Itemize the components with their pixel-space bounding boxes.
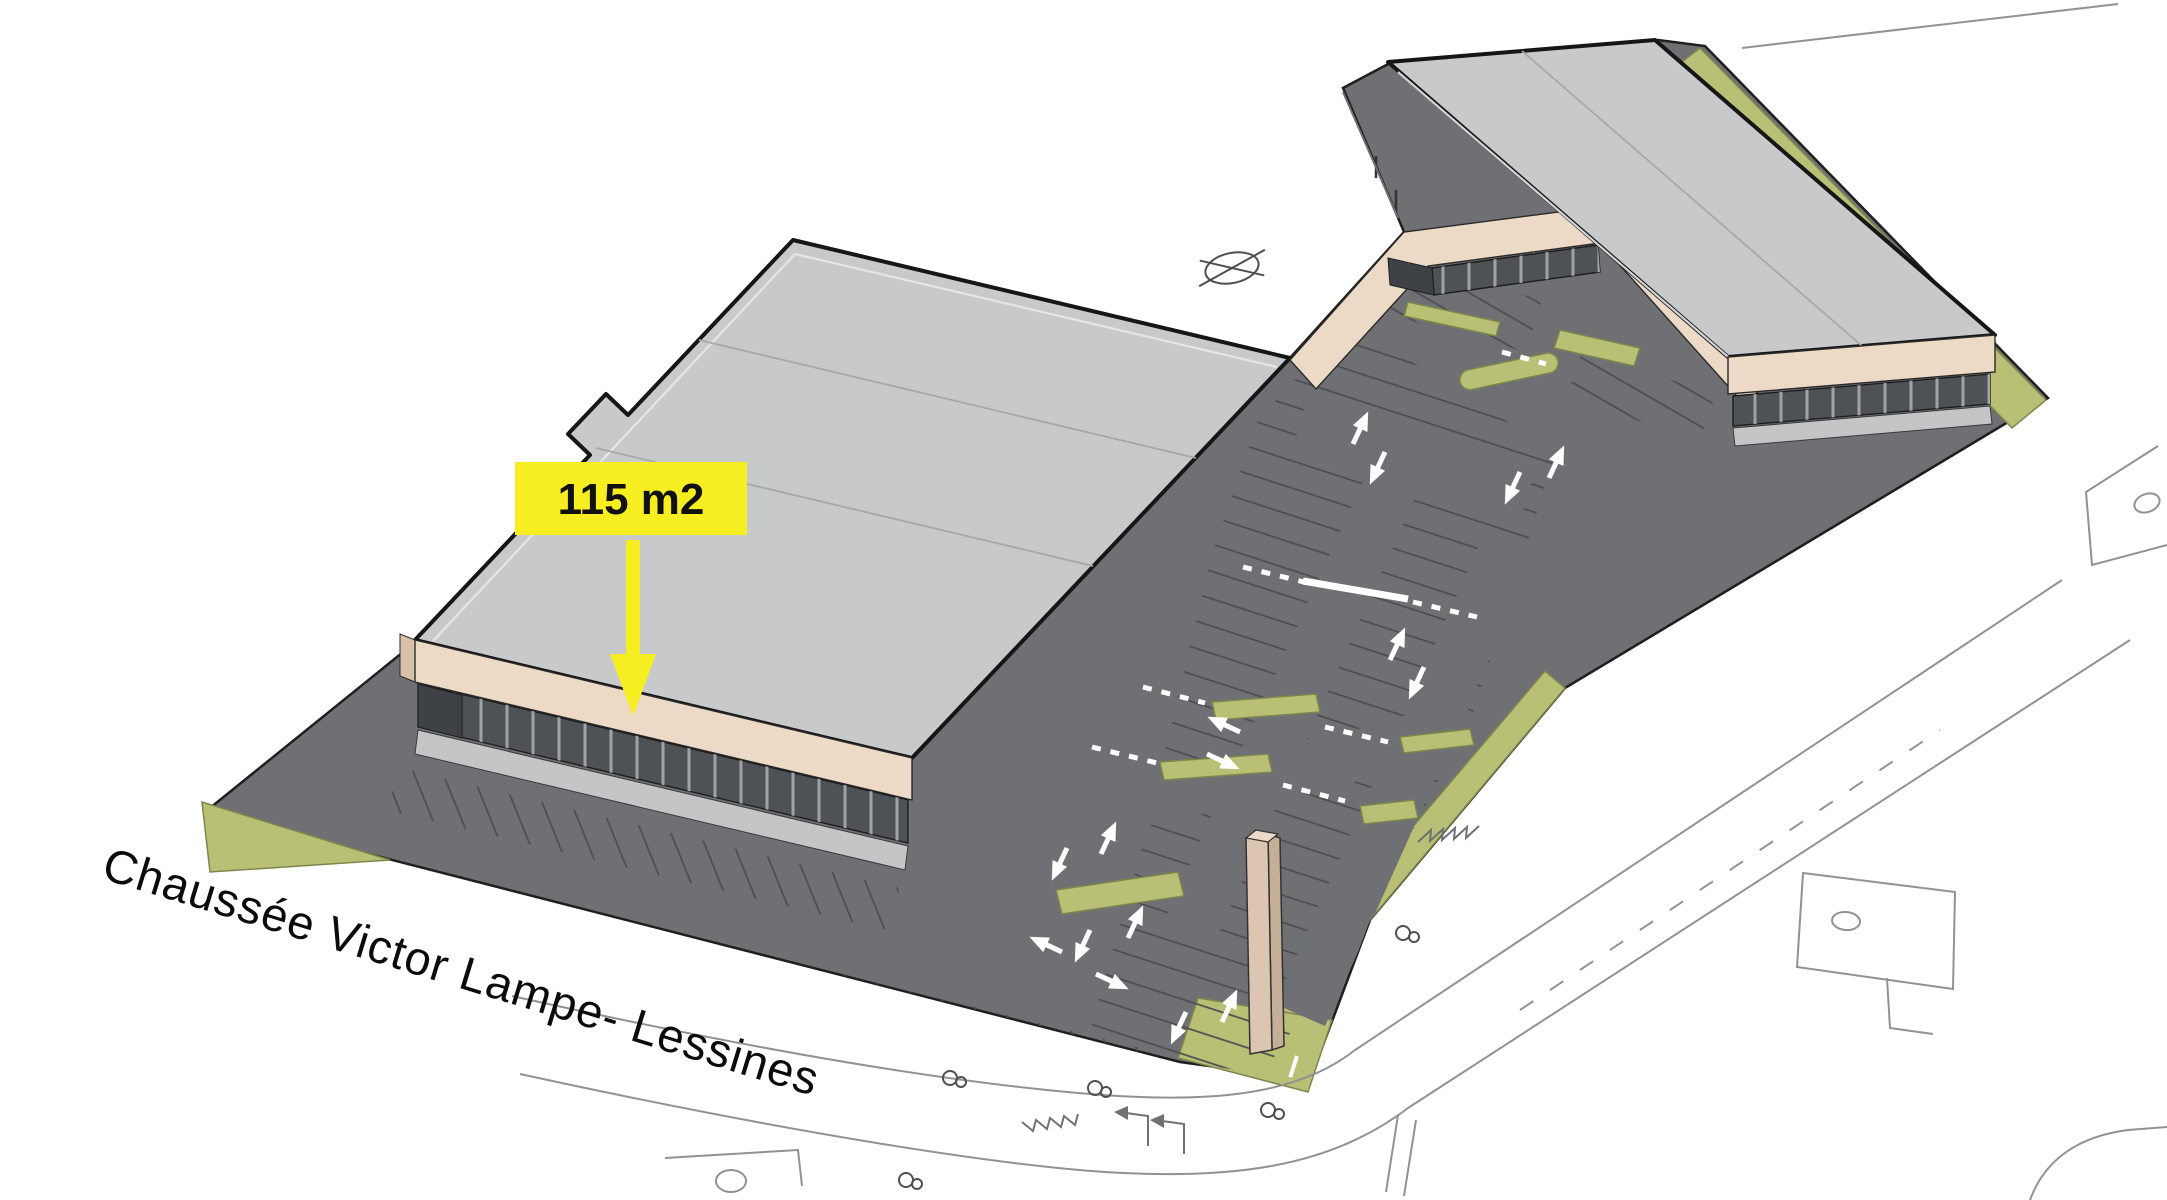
- survey-marker-icon: [1194, 246, 1271, 290]
- tree-icon: [1396, 926, 1419, 942]
- tree-icon: [1261, 1103, 1284, 1119]
- left-building-fascia-return: [400, 634, 415, 682]
- site-plan: 115 m2 Chaussée Victor Lampe- Lessines: [0, 0, 2167, 1200]
- neighbor-footprint: [1797, 873, 1955, 1034]
- pylon-sign: [1246, 830, 1284, 1054]
- area-label: 115 m2: [558, 475, 705, 524]
- neighbor-footprint: [665, 1150, 802, 1192]
- site-plan-canvas: 115 m2 Chaussée Victor Lampe- Lessines: [0, 0, 2167, 1200]
- tree-icon: [899, 1173, 922, 1189]
- neighbor-footprint: [2086, 446, 2167, 565]
